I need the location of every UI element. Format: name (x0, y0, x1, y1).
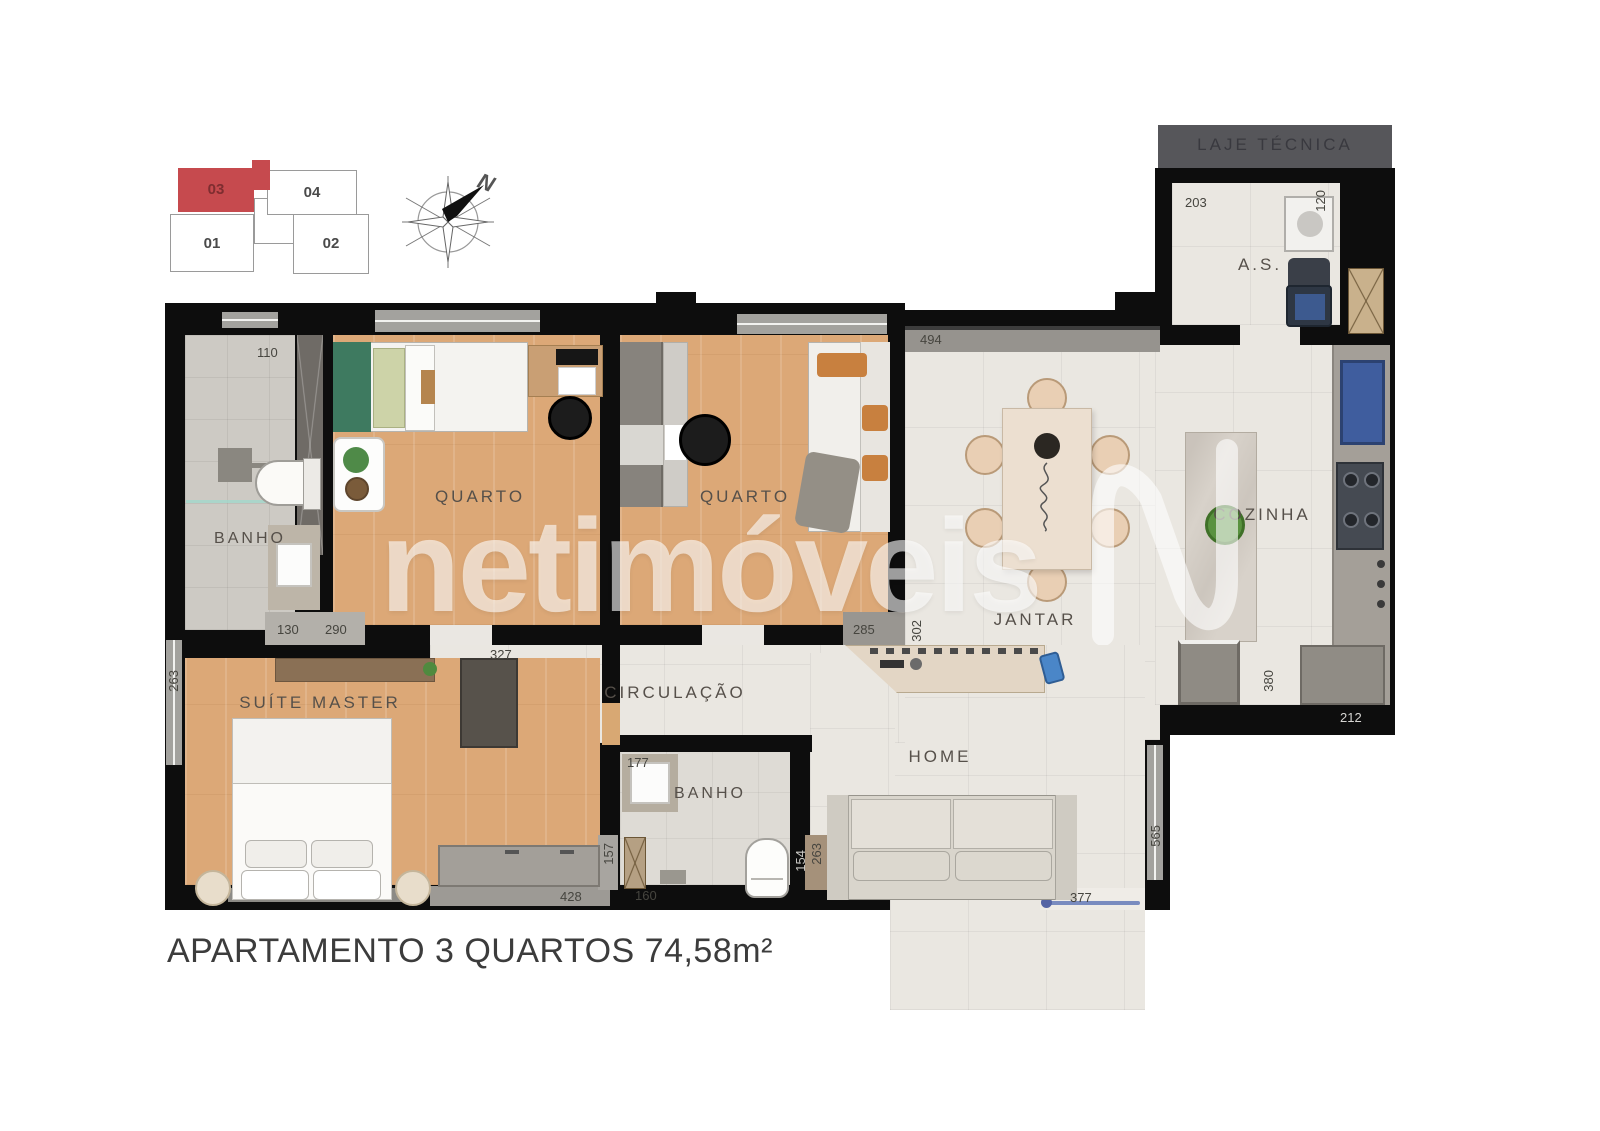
nightstand-right (395, 870, 431, 906)
toilet-banho1-tank (303, 458, 321, 510)
sofa-arm-right (1055, 795, 1077, 900)
as-label: A.S. (1238, 255, 1282, 275)
chair-quarto2 (679, 414, 731, 466)
banho2-label: BANHO (674, 785, 746, 803)
sofa-back-cushion-1 (851, 799, 951, 849)
sofa-seat-cushion-2 (955, 851, 1052, 881)
window-home (1147, 745, 1163, 880)
wardrobe-handle-2 (560, 850, 574, 854)
suite-door-gap (602, 703, 620, 745)
circulacao-label: CIRCULAÇÃO (604, 683, 745, 703)
laundry-sink-basin (1295, 294, 1325, 320)
dim-203: 203 (1185, 195, 1207, 210)
suite-door-plant (423, 662, 437, 676)
toilet-seat-line (751, 878, 783, 880)
dim-263-home: 263 (809, 843, 824, 865)
wall-banho2-top (620, 735, 812, 752)
wall-column-jantar (1115, 292, 1170, 320)
dim-154: 154 (793, 850, 808, 872)
sideboard-decor-tray (880, 660, 904, 668)
orange-pillow-top (817, 353, 867, 377)
sofa-arm-left (827, 795, 849, 900)
sideboard-handles (870, 648, 1040, 654)
toilet-banho2 (745, 838, 789, 898)
suite-pillow-3 (241, 870, 309, 900)
banho1-label: BANHO (214, 530, 286, 548)
laundry-sink (1286, 285, 1332, 327)
sideboard-decor-bowl (910, 658, 922, 670)
dim-177: 177 (627, 755, 649, 770)
as-door-gap (1240, 325, 1300, 345)
laptop-quarto1 (556, 349, 598, 365)
counter-knob-1 (1377, 560, 1385, 568)
counter-knob-2 (1377, 580, 1385, 588)
burner-4 (1364, 512, 1380, 528)
dim-212: 212 (1340, 710, 1362, 725)
closet-door (297, 335, 323, 555)
wardrobe-handle-1 (505, 850, 519, 854)
dim-565: 565 (1148, 825, 1163, 847)
fridge (1178, 640, 1240, 705)
bowl-quarto1 (345, 477, 369, 501)
wall-column-top (656, 292, 696, 337)
plant-quarto1 (343, 447, 369, 473)
dim-428: 428 (560, 889, 582, 904)
suite-pillow-4 (313, 870, 381, 900)
dim-263-left: 263 (166, 670, 181, 692)
suite-cabinet (460, 658, 518, 748)
sofa-back-cushion-2 (953, 799, 1053, 849)
sofa-seat-cushion-1 (853, 851, 950, 881)
dim-160: 160 (635, 888, 657, 903)
counter-knob-3 (1377, 600, 1385, 608)
orange-pillow-1 (862, 405, 888, 431)
window-banho1 (222, 312, 278, 328)
suite-wardrobe (438, 845, 600, 887)
shower-head (218, 448, 252, 482)
bed-quarto1-pillow-a (373, 348, 405, 428)
bed-quarto1-green-throw (333, 342, 371, 432)
window-quarto2 (737, 314, 887, 334)
sink-banho1 (276, 543, 312, 587)
suite-pillow-1 (245, 840, 307, 868)
as-hatch-door (1348, 268, 1384, 334)
shower-drain-banho2 (660, 870, 686, 884)
burner-2 (1364, 472, 1380, 488)
nightstand-left (195, 870, 231, 906)
dim-130: 130 (277, 622, 299, 637)
floor-plan-page: 04 01 02 03 N LAJE TÉ (0, 0, 1600, 1131)
dim-380: 380 (1261, 670, 1276, 692)
watermark-logo (1085, 435, 1245, 645)
dim-120: 120 (1313, 190, 1328, 212)
home-label: HOME (909, 747, 972, 767)
suite-label: SUÍTE MASTER (239, 693, 401, 713)
table-centerpiece (1034, 433, 1060, 459)
chair-quarto1 (548, 396, 592, 440)
window-suite (166, 640, 182, 765)
burner-3 (1343, 512, 1359, 528)
suite-pillow-2 (311, 840, 373, 868)
dim-494: 494 (920, 332, 942, 347)
dining-chair-w1 (965, 435, 1005, 475)
kitchen-appliance-br (1300, 645, 1385, 705)
dim-290: 290 (325, 622, 347, 637)
burner-1 (1343, 472, 1359, 488)
dim-327: 327 (490, 647, 512, 662)
dim-377: 377 (1070, 890, 1092, 905)
bed-quarto1-accent-pillow (421, 370, 435, 404)
stove (1336, 462, 1384, 550)
watermark-netimoveis: netimóveis (380, 490, 1040, 641)
orange-pillow-2 (862, 455, 888, 481)
wardrobe-quarto2-shelf (620, 425, 663, 465)
entry-door-leaf (1045, 901, 1140, 905)
plan-title: APARTAMENTO 3 QUARTOS 74,58m² (167, 932, 773, 971)
banho2-hatch-door (624, 837, 646, 889)
dim-110: 110 (257, 345, 278, 360)
dim-157: 157 (601, 843, 616, 865)
kitchen-sink (1340, 360, 1385, 445)
washer-drum (1297, 211, 1323, 237)
laje-tecnica-label: LAJE TÉCNICA (1158, 135, 1392, 155)
sill-suite-wardrobe (430, 886, 610, 906)
suite-shelf (275, 658, 435, 682)
suite-bed-duvet (232, 718, 392, 784)
window-quarto1 (375, 310, 540, 332)
paper-quarto1 (558, 367, 596, 395)
jantar-top-sill (905, 326, 1160, 352)
laje-tecnica: LAJE TÉCNICA (1158, 125, 1392, 173)
